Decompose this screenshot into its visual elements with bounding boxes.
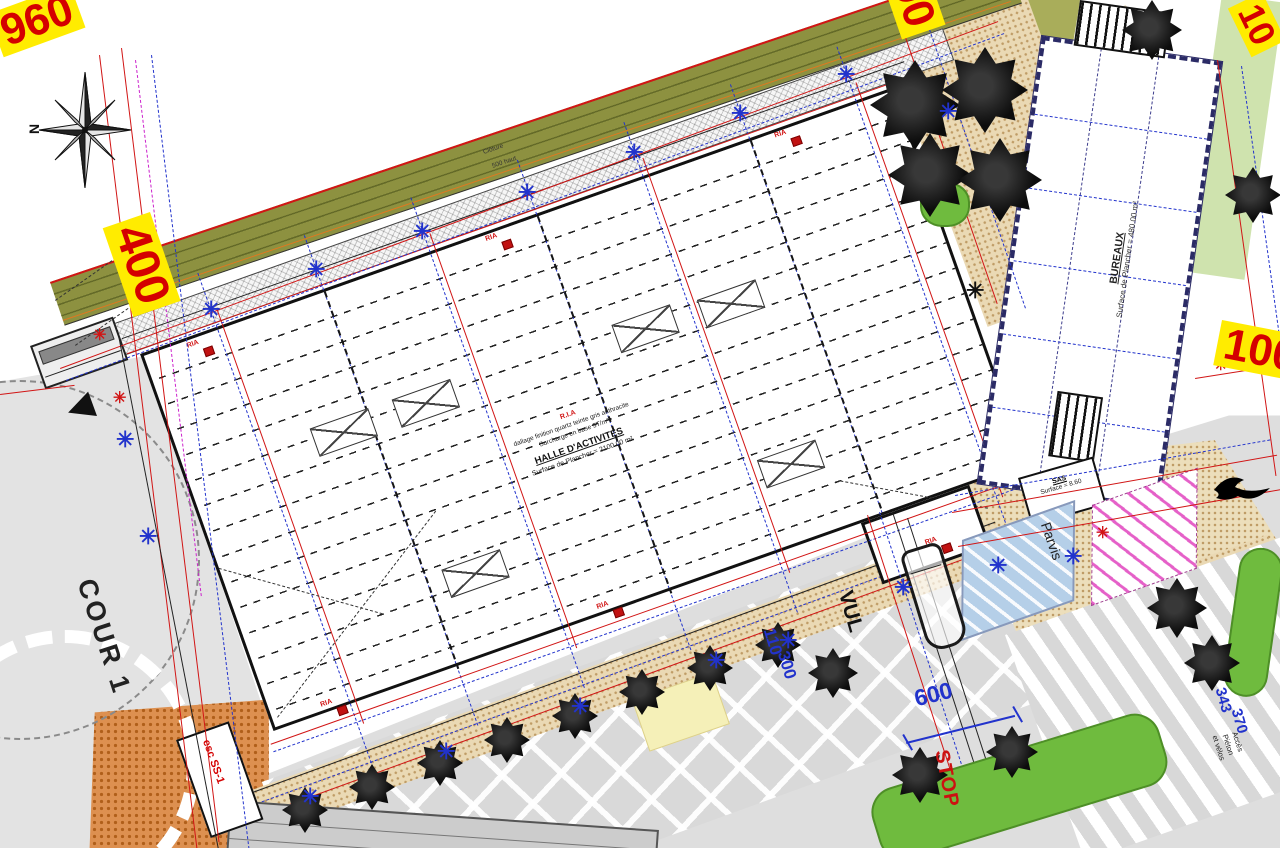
office-stair-inner: [1048, 391, 1103, 463]
axis-star: ✳: [1064, 546, 1082, 568]
axis-star: ✳: [625, 142, 643, 164]
slope-dashed-line: [219, 568, 383, 614]
tree: [958, 138, 1042, 222]
skylight: [441, 549, 509, 598]
axis-star: ✳: [301, 786, 319, 808]
ria-marker-label: RIA: [774, 129, 788, 140]
compass-rose: N: [25, 70, 135, 190]
ria-marker: [501, 239, 513, 251]
ria-marker: [790, 135, 802, 147]
tree: [1225, 167, 1280, 223]
fence-label: Clôture: [482, 143, 504, 156]
slope-dashed-line: [277, 511, 436, 718]
axis-star: ✳: [116, 429, 134, 451]
tree: [1147, 578, 1207, 638]
axis-star: ✳: [437, 741, 455, 763]
axis-star: ✳: [139, 526, 157, 548]
axis-star: ✳: [939, 101, 957, 123]
tree: [349, 764, 395, 810]
skylight: [611, 304, 679, 353]
axis-star: ✳: [307, 259, 325, 281]
axis-star: ✳: [202, 299, 220, 321]
retaining-line2: [229, 838, 654, 848]
office-title-block: BUREAUX Surface de Plancher = 480.00 m²: [1095, 143, 1149, 374]
dim-label-960: 960: [0, 0, 86, 57]
ria-marker: [203, 345, 215, 357]
tree: [484, 717, 530, 763]
office-grid-hline: [1024, 187, 1196, 213]
bird-silhouette: [1210, 468, 1274, 514]
axis-star: ✳: [518, 182, 536, 204]
red-cross-marker: ✳: [113, 391, 126, 407]
tree: [619, 669, 665, 715]
skylight: [757, 439, 825, 488]
joint-line-dark: [324, 291, 459, 669]
axis-star: ✳: [894, 577, 912, 599]
skylight: [392, 379, 460, 428]
axis-star: ✳: [837, 64, 855, 86]
skylight: [697, 279, 765, 328]
tree: [1184, 635, 1240, 691]
tree: [808, 648, 858, 698]
axis-star: ✳: [707, 650, 725, 672]
site-plan: Clôture 500 haut esc SS-1: [0, 0, 1280, 848]
axis-star: ✳: [413, 221, 431, 243]
ria-marker: [336, 704, 348, 716]
office-grid-hline: [1003, 334, 1175, 360]
van-windshield-line: [911, 564, 942, 574]
office-grid-hline: [1035, 114, 1207, 140]
compass-north-letter: N: [26, 124, 42, 134]
ria-marker-label: RIA: [484, 232, 498, 243]
ria-marker-label: RIA: [319, 698, 333, 709]
tree: [888, 133, 972, 217]
axis-red-line: [642, 158, 790, 573]
north-red-line: [127, 76, 910, 354]
red-cross-marker: ✳: [93, 328, 106, 344]
office-grid-hline: [1014, 260, 1186, 286]
axis-star: ✳: [989, 555, 1007, 577]
axis-star: ✳: [571, 696, 589, 718]
red-cross-marker: ✳: [1096, 526, 1109, 542]
axis-star: ✳: [731, 103, 749, 125]
tree: [1122, 0, 1182, 60]
ria-marker-label: RIA: [596, 600, 610, 611]
skylight: [310, 408, 378, 457]
column-axis-line: [623, 122, 798, 613]
ria-marker: [613, 607, 625, 619]
tree: [986, 726, 1038, 778]
survey-cross-black: ✳: [966, 280, 984, 302]
